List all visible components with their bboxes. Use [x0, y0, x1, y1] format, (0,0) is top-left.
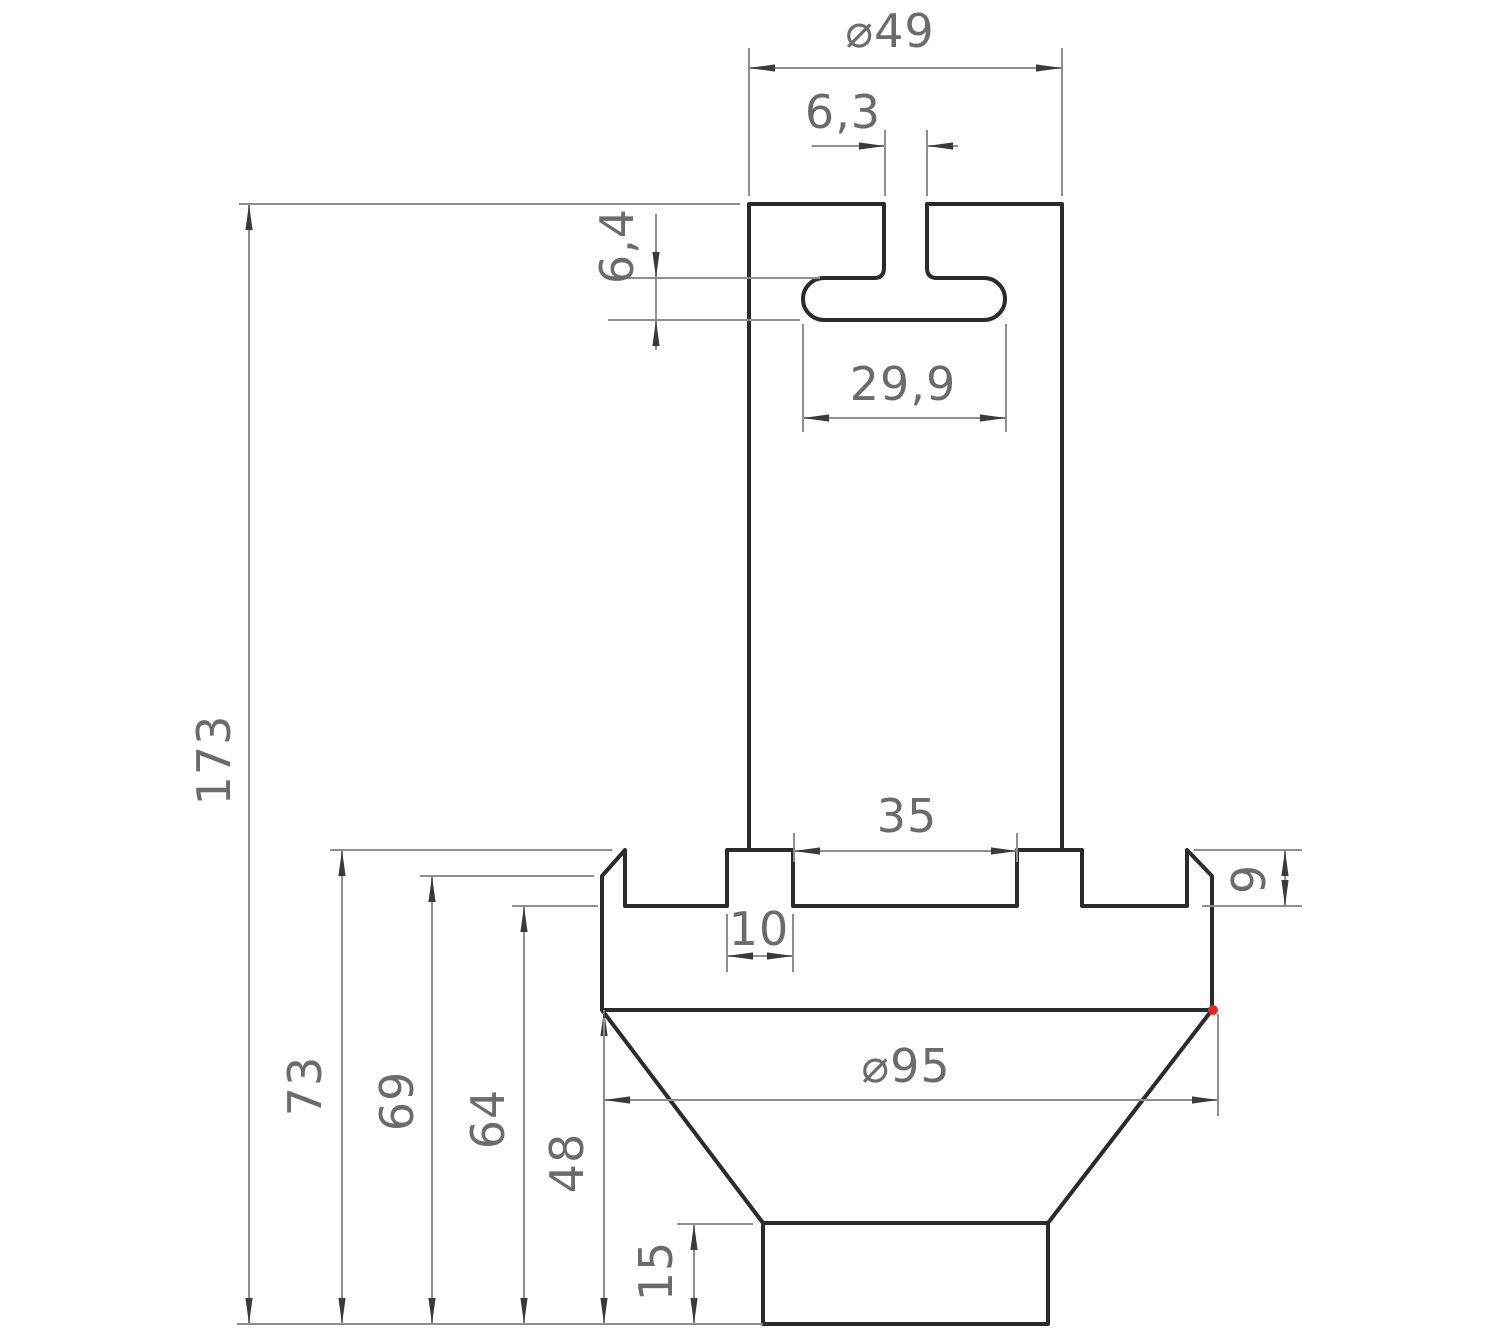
- dim-height-64: [512, 906, 598, 1324]
- dim-label-center-groove: 35: [877, 793, 938, 839]
- taper-left-edge: [602, 1010, 763, 1223]
- dim-label-height-69: 69: [374, 1071, 420, 1132]
- taper-right-edge: [1048, 1010, 1212, 1223]
- dim-label-flange-diameter: ⌀95: [861, 1043, 950, 1089]
- dim-label-tslot-width: 29,9: [850, 361, 956, 407]
- dim-label-tslot-height: 6,4: [594, 208, 640, 284]
- flange-profile: [602, 850, 1212, 1010]
- dim-label-base-height: 15: [633, 1241, 679, 1302]
- dim-label-height-73: 73: [282, 1056, 328, 1117]
- dim-total-height: [239, 204, 740, 1324]
- dim-label-top-slot-width: 6,3: [805, 89, 881, 135]
- dim-label-groove-depth: 9: [1226, 864, 1272, 894]
- dim-top-slot-width: [812, 130, 958, 196]
- dim-top-diameter: [749, 48, 1062, 196]
- dim-label-height-48: 48: [544, 1133, 590, 1194]
- dim-label-total-height: 173: [191, 715, 237, 806]
- dim-label-height-64: 64: [465, 1089, 511, 1150]
- drawing-canvas: [0, 0, 1500, 1333]
- dim-base-height: [677, 1224, 753, 1324]
- technical-drawing: ⌀49 6,3 6,4 29,9 35 10 9 173 73 69 64 48…: [0, 0, 1500, 1333]
- base-block: [763, 1223, 1048, 1324]
- column-profile: [749, 204, 1062, 850]
- dim-label-key-tab: 10: [729, 906, 790, 952]
- highlight-dot: [1208, 1005, 1218, 1015]
- dim-label-top-diameter: ⌀49: [845, 8, 934, 54]
